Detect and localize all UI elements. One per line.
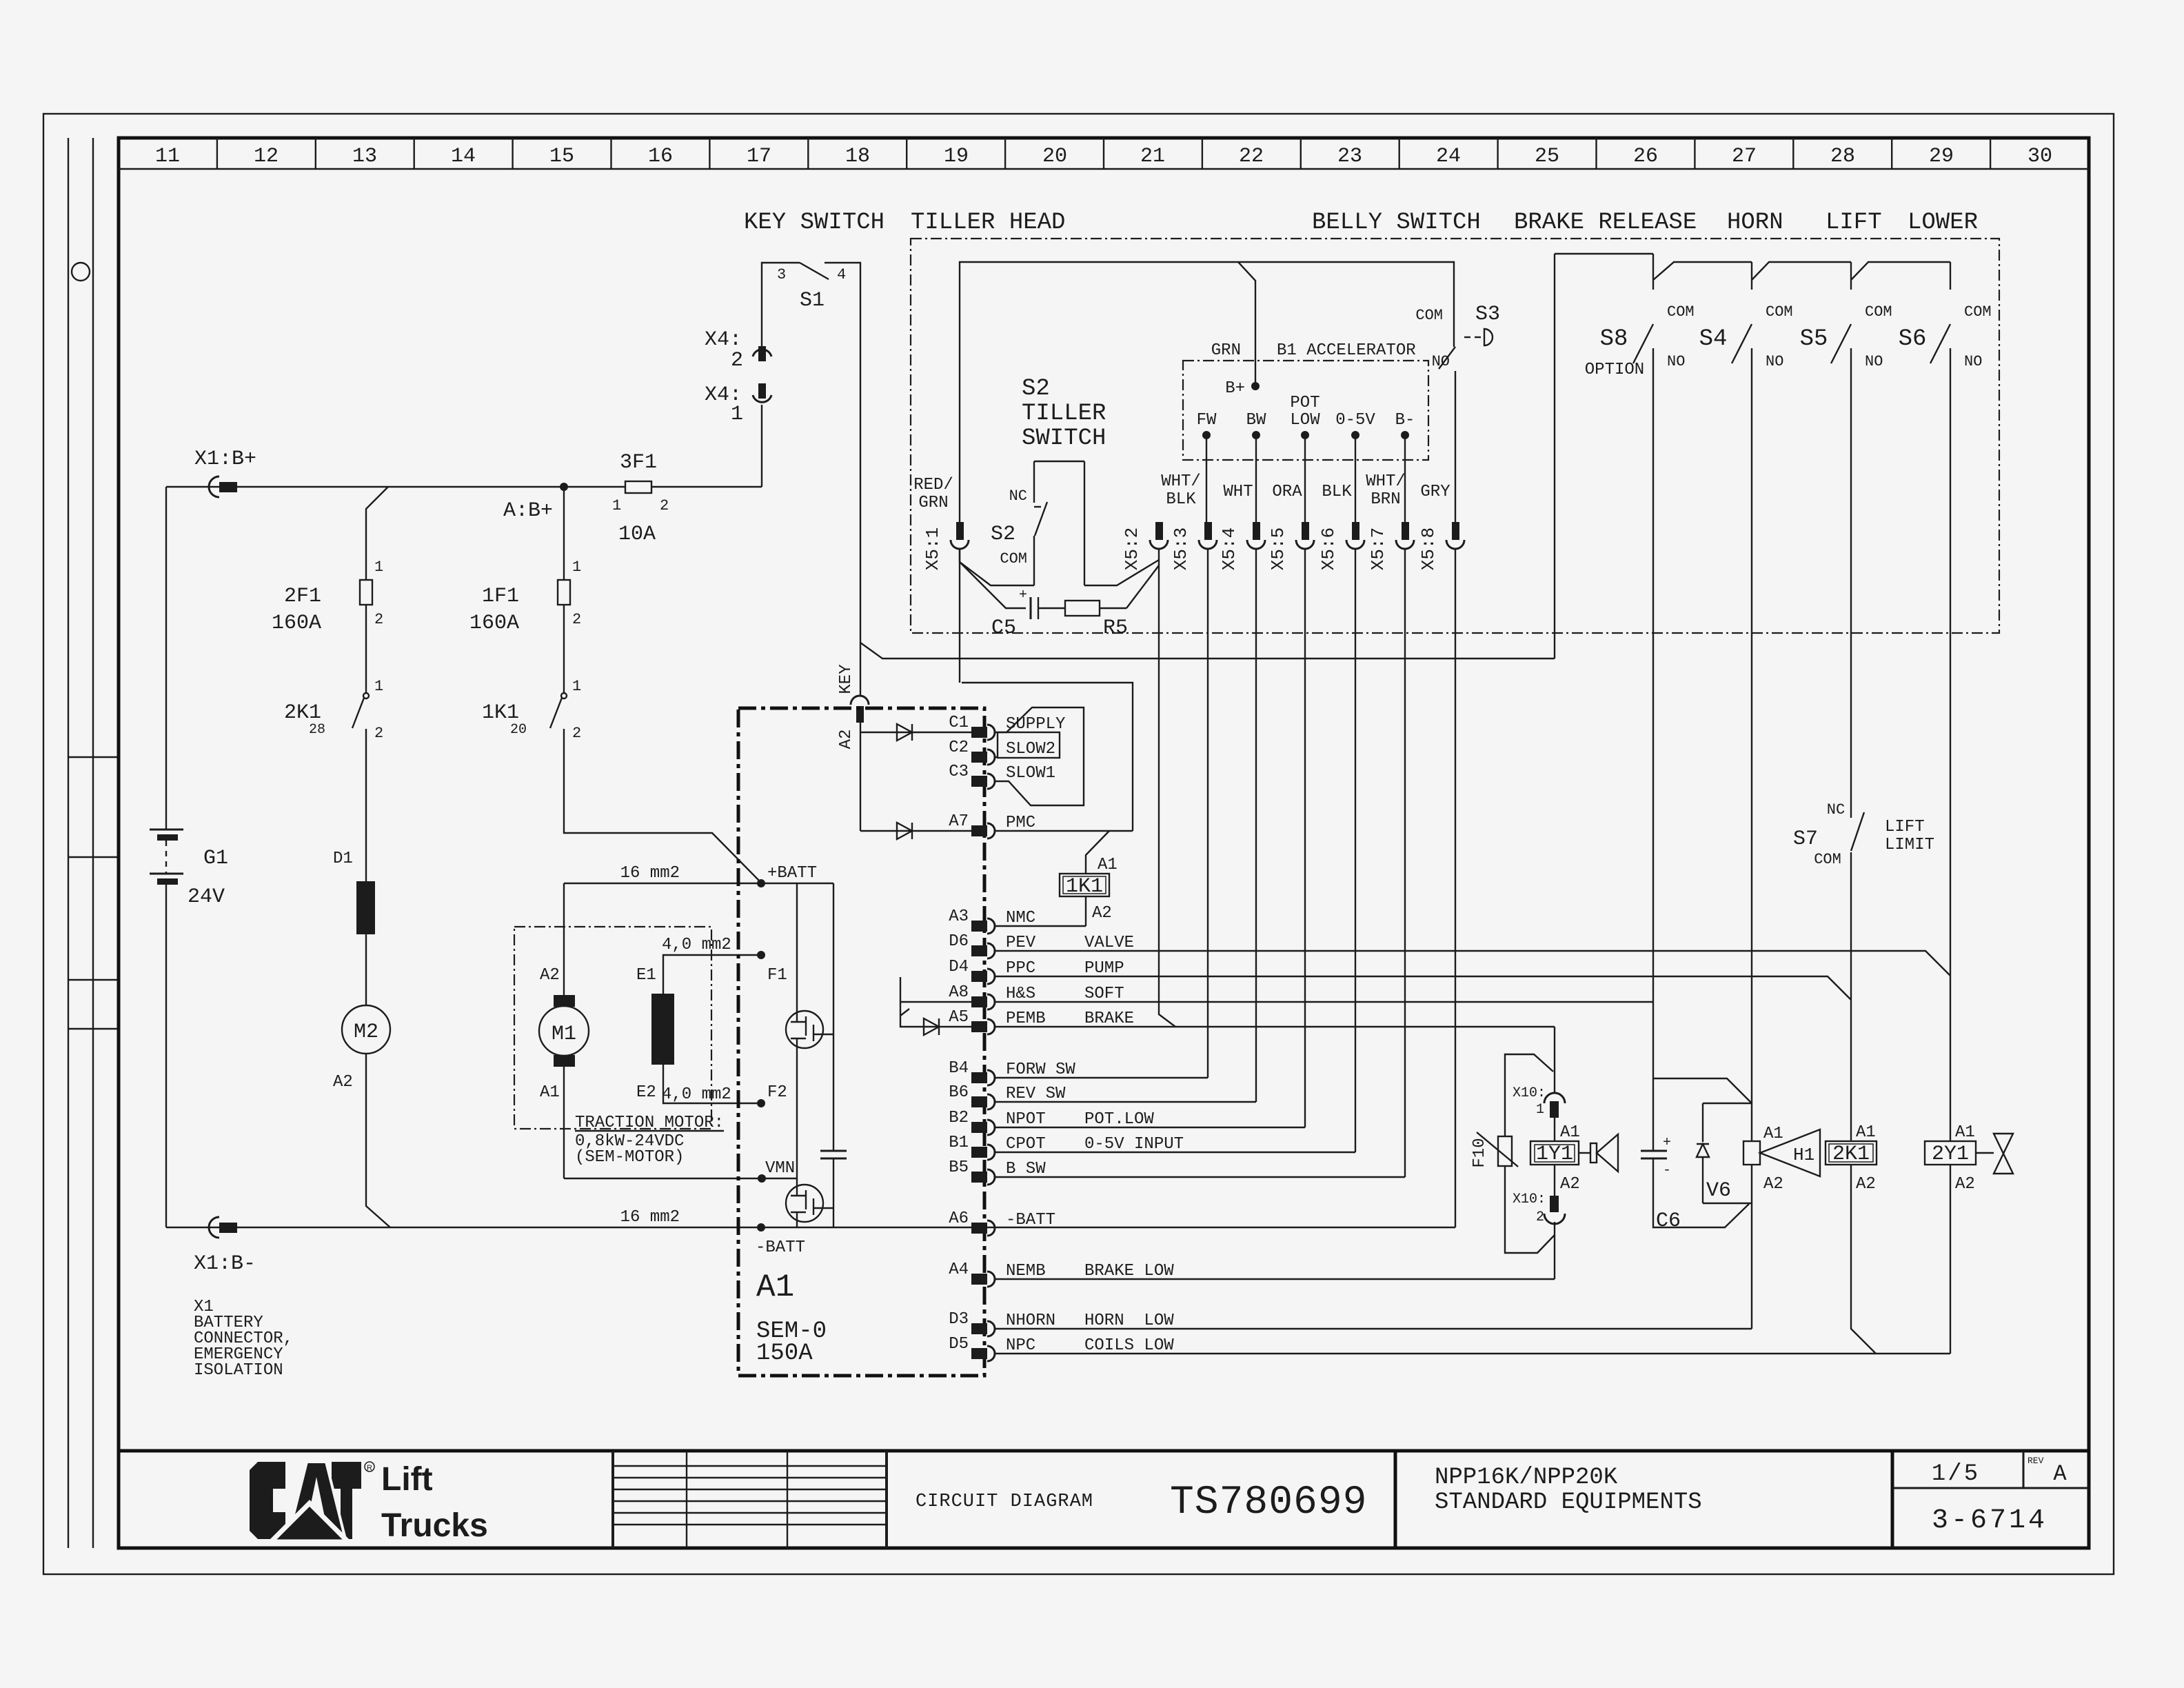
svg-text:CPOT: CPOT: [1006, 1135, 1046, 1154]
svg-text:S6: S6: [1899, 326, 1927, 352]
svg-text:18: 18: [845, 145, 870, 168]
svg-text:A2: A2: [540, 966, 560, 985]
svg-text:1: 1: [374, 678, 383, 695]
svg-text:KEY: KEY: [837, 664, 856, 694]
svg-text:COM: COM: [1865, 303, 1892, 321]
svg-text:NC: NC: [1827, 801, 1845, 818]
svg-text:3-6714: 3-6714: [1932, 1505, 2048, 1536]
svg-text:(SEM-MOTOR): (SEM-MOTOR): [575, 1148, 684, 1167]
svg-text:20: 20: [1042, 145, 1067, 168]
svg-text:A2: A2: [1955, 1175, 1975, 1194]
svg-text:15: 15: [549, 145, 574, 168]
svg-text:S3: S3: [1475, 303, 1500, 326]
svg-text:X5:3: X5:3: [1171, 527, 1191, 570]
svg-text:REV: REV: [2028, 1456, 2044, 1466]
svg-text:A1: A1: [1098, 856, 1118, 874]
svg-text:2K1: 2K1: [1832, 1143, 1870, 1166]
svg-text:X5:5: X5:5: [1268, 527, 1288, 570]
svg-text:16 mm2: 16 mm2: [620, 864, 680, 883]
svg-text:A7: A7: [949, 812, 969, 831]
svg-text:1: 1: [374, 559, 383, 576]
svg-text:19: 19: [944, 145, 969, 168]
svg-text:A2: A2: [837, 730, 856, 750]
svg-text:160A: 160A: [272, 612, 321, 635]
svg-text:VALVE: VALVE: [1084, 934, 1134, 952]
svg-text:C5: C5: [991, 616, 1016, 640]
svg-text:WHT: WHT: [1223, 483, 1253, 501]
svg-text:ISOLATION: ISOLATION: [194, 1361, 283, 1380]
svg-text:LOWER: LOWER: [1908, 210, 1978, 236]
svg-text:SLOW2: SLOW2: [1006, 740, 1055, 758]
svg-text:26: 26: [1633, 145, 1658, 168]
svg-text:B1 ACCELERATOR: B1 ACCELERATOR: [1277, 341, 1416, 360]
svg-text:Lift: Lift: [381, 1461, 433, 1498]
svg-text:SLOW1: SLOW1: [1006, 764, 1055, 783]
svg-text:COM: COM: [1000, 550, 1027, 567]
svg-text:B4: B4: [949, 1059, 969, 1078]
svg-text:POT: POT: [1290, 394, 1319, 412]
svg-text:C6: C6: [1656, 1209, 1681, 1233]
svg-text:1: 1: [612, 497, 621, 514]
svg-text:NO: NO: [1432, 353, 1450, 370]
svg-text:X10:: X10:: [1513, 1192, 1546, 1207]
svg-text:X5:7: X5:7: [1368, 527, 1388, 570]
svg-text:SOFT: SOFT: [1084, 985, 1124, 1003]
svg-text:LOW: LOW: [1290, 411, 1320, 430]
svg-text:GRY: GRY: [1420, 483, 1450, 501]
svg-text:PUMP: PUMP: [1084, 959, 1124, 978]
svg-text:ORA: ORA: [1272, 483, 1302, 501]
svg-text:2F1: 2F1: [284, 585, 321, 608]
svg-text:TILLER HEAD: TILLER HEAD: [911, 210, 1065, 236]
svg-text:X5:1: X5:1: [922, 527, 943, 570]
svg-text:A1: A1: [540, 1083, 560, 1102]
svg-text:1K1: 1K1: [1066, 875, 1103, 898]
svg-text:150A: 150A: [756, 1340, 813, 1367]
svg-text:BRAKE RELEASE: BRAKE RELEASE: [1514, 210, 1697, 236]
svg-text:X1:B+: X1:B+: [194, 448, 256, 471]
svg-text:10A: 10A: [618, 523, 656, 546]
svg-text:COM: COM: [1964, 303, 1992, 321]
svg-text:1F1: 1F1: [482, 585, 519, 608]
svg-text:1: 1: [1536, 1102, 1544, 1118]
svg-text:BW: BW: [1246, 411, 1266, 430]
svg-text:A2: A2: [1560, 1175, 1580, 1194]
svg-text:B SW: B SW: [1006, 1160, 1046, 1178]
svg-text:A1: A1: [1856, 1123, 1876, 1142]
svg-text:24: 24: [1436, 145, 1461, 168]
svg-text:12: 12: [254, 145, 279, 168]
svg-text:TS780699: TS780699: [1170, 1480, 1367, 1525]
svg-text:0-5V INPUT: 0-5V INPUT: [1084, 1135, 1184, 1154]
svg-text:-: -: [1663, 1163, 1671, 1178]
svg-text:A: A: [2053, 1461, 2067, 1487]
svg-text:F1: F1: [767, 966, 787, 985]
svg-text:A6: A6: [949, 1209, 969, 1228]
svg-text:21: 21: [1140, 145, 1165, 168]
svg-text:X5:4: X5:4: [1219, 527, 1240, 570]
svg-text:STANDARD EQUIPMENTS: STANDARD EQUIPMENTS: [1435, 1489, 1702, 1516]
svg-text:PMC: PMC: [1006, 814, 1035, 832]
svg-text:13: 13: [352, 145, 377, 168]
svg-text:16: 16: [648, 145, 673, 168]
svg-text:F2: F2: [767, 1083, 787, 1102]
svg-text:TRACTION MOTOR:: TRACTION MOTOR:: [575, 1114, 724, 1132]
svg-text:NO: NO: [1865, 353, 1883, 370]
svg-text:WHT/: WHT/: [1161, 472, 1201, 491]
svg-text:POT.LOW: POT.LOW: [1084, 1110, 1154, 1129]
svg-text:BELLY SWITCH: BELLY SWITCH: [1312, 210, 1481, 236]
svg-text:COM: COM: [1814, 851, 1841, 868]
svg-text:2: 2: [572, 725, 581, 742]
svg-text:S2: S2: [1022, 376, 1050, 402]
svg-text:A1: A1: [1955, 1123, 1975, 1142]
svg-text:1: 1: [572, 678, 581, 695]
svg-text:+BATT: +BATT: [767, 864, 817, 883]
svg-text:M1: M1: [552, 1023, 576, 1046]
svg-text:KEY SWITCH: KEY SWITCH: [744, 210, 884, 236]
svg-text:11: 11: [155, 145, 180, 168]
svg-text:C2: C2: [949, 738, 969, 757]
svg-text:20: 20: [510, 722, 527, 738]
svg-text:CIRCUIT DIAGRAM: CIRCUIT DIAGRAM: [916, 1491, 1093, 1512]
svg-text:4: 4: [837, 266, 846, 283]
svg-text:BLK: BLK: [1166, 490, 1196, 509]
svg-text:B6: B6: [949, 1083, 969, 1102]
svg-text:A2: A2: [333, 1073, 353, 1092]
svg-text:D5: D5: [949, 1335, 969, 1354]
svg-text:4,0 mm2: 4,0 mm2: [662, 936, 731, 954]
svg-text:2: 2: [731, 349, 743, 372]
svg-text:PPC: PPC: [1006, 959, 1035, 978]
svg-text:2: 2: [374, 611, 383, 628]
svg-text:1Y1: 1Y1: [1536, 1143, 1573, 1166]
svg-text:1/5: 1/5: [1932, 1461, 1980, 1487]
svg-text:B2: B2: [949, 1109, 969, 1127]
svg-text:1K1: 1K1: [482, 701, 519, 725]
svg-text:E2: E2: [636, 1083, 656, 1102]
svg-text:24V: 24V: [188, 885, 225, 909]
svg-text:NO: NO: [1667, 353, 1685, 370]
svg-text:OPTION: OPTION: [1585, 361, 1644, 379]
svg-text:FORW SW: FORW SW: [1006, 1061, 1075, 1079]
svg-text:25: 25: [1535, 145, 1559, 168]
svg-text:+: +: [1019, 587, 1027, 603]
svg-text:GRN: GRN: [918, 494, 948, 512]
svg-text:A2: A2: [1092, 904, 1112, 923]
svg-text:14: 14: [451, 145, 476, 168]
svg-text:3F1: 3F1: [620, 451, 657, 474]
svg-text:BRAKE: BRAKE: [1084, 1009, 1134, 1028]
svg-text:NPOT: NPOT: [1006, 1110, 1046, 1129]
svg-text:16 mm2: 16 mm2: [620, 1208, 680, 1227]
svg-text:NO: NO: [1766, 353, 1783, 370]
svg-text:X5:2: X5:2: [1122, 527, 1142, 570]
svg-text:PEV: PEV: [1006, 934, 1036, 952]
svg-text:30: 30: [2028, 145, 2052, 168]
svg-text:A2: A2: [1763, 1175, 1783, 1194]
svg-text:REV SW: REV SW: [1006, 1085, 1066, 1103]
svg-text:22: 22: [1239, 145, 1264, 168]
svg-text:B1: B1: [949, 1134, 969, 1152]
svg-text:S7: S7: [1793, 827, 1818, 851]
svg-text:1: 1: [731, 403, 743, 426]
svg-text:A5: A5: [949, 1008, 969, 1027]
svg-text:-BATT: -BATT: [1006, 1211, 1055, 1229]
svg-text:A1: A1: [1763, 1125, 1783, 1143]
svg-text:D6: D6: [949, 932, 969, 951]
svg-text:27: 27: [1732, 145, 1757, 168]
svg-text:1: 1: [572, 559, 581, 576]
svg-text:D3: D3: [949, 1310, 969, 1329]
svg-text:HORN: HORN: [1727, 210, 1783, 236]
svg-text:4,0 mm2: 4,0 mm2: [662, 1085, 731, 1104]
svg-text:B+: B+: [1225, 379, 1245, 398]
svg-text:H1: H1: [1793, 1145, 1814, 1165]
svg-text:A2: A2: [1856, 1175, 1876, 1194]
svg-text:COM: COM: [1415, 307, 1443, 324]
svg-text:C1: C1: [949, 714, 969, 732]
svg-text:28: 28: [1830, 145, 1855, 168]
svg-text:HORN LOW: HORN LOW: [1084, 1312, 1174, 1330]
svg-text:F10: F10: [1470, 1138, 1489, 1167]
svg-text:17: 17: [747, 145, 771, 168]
svg-text:SWITCH: SWITCH: [1022, 425, 1106, 452]
svg-text:TILLER: TILLER: [1022, 401, 1106, 427]
svg-text:LIFT: LIFT: [1826, 210, 1882, 236]
svg-text:H&S: H&S: [1006, 985, 1035, 1003]
svg-text:NMC: NMC: [1006, 909, 1035, 927]
svg-text:X5:6: X5:6: [1318, 527, 1339, 570]
svg-text:GRN: GRN: [1211, 341, 1241, 360]
svg-text:BRN: BRN: [1371, 490, 1400, 509]
svg-text:NC: NC: [1009, 488, 1027, 505]
svg-text:G1: G1: [203, 847, 228, 870]
svg-text:Trucks: Trucks: [381, 1507, 488, 1544]
svg-text:X1:B-: X1:B-: [194, 1252, 256, 1276]
svg-text:A4: A4: [949, 1260, 969, 1279]
svg-text:COILS LOW: COILS LOW: [1084, 1336, 1174, 1355]
svg-text:COM: COM: [1667, 303, 1695, 321]
svg-text:NPP16K/NPP20K: NPP16K/NPP20K: [1435, 1465, 1618, 1491]
svg-text:RED/: RED/: [913, 476, 953, 494]
svg-text:S5: S5: [1800, 326, 1828, 352]
svg-text:A1: A1: [756, 1269, 794, 1305]
svg-text:S2: S2: [991, 523, 1015, 546]
svg-text:A8: A8: [949, 983, 969, 1002]
svg-text:X4:: X4:: [705, 328, 742, 352]
svg-text:S1: S1: [800, 289, 825, 312]
svg-text:23: 23: [1337, 145, 1362, 168]
svg-text:29: 29: [1929, 145, 1954, 168]
svg-text:R: R: [367, 1464, 372, 1472]
svg-text:NHORN: NHORN: [1006, 1312, 1055, 1330]
svg-text:FW: FW: [1197, 411, 1217, 430]
svg-text:2: 2: [374, 725, 383, 742]
svg-text:2: 2: [572, 611, 581, 628]
svg-text:BLK: BLK: [1322, 483, 1352, 501]
svg-text:28: 28: [309, 722, 325, 738]
svg-text:COM: COM: [1766, 303, 1793, 321]
svg-text:D4: D4: [949, 958, 969, 976]
svg-text:X5:8: X5:8: [1418, 527, 1439, 570]
svg-text:A3: A3: [949, 907, 969, 926]
svg-text:PEMB: PEMB: [1006, 1009, 1046, 1028]
svg-text:NPC: NPC: [1006, 1336, 1035, 1355]
svg-text:NO: NO: [1964, 353, 1982, 370]
svg-text:M2: M2: [354, 1021, 378, 1044]
svg-text:2: 2: [1536, 1209, 1544, 1225]
svg-text:WHT/: WHT/: [1366, 472, 1406, 491]
svg-text:V6: V6: [1706, 1179, 1731, 1203]
svg-text:2K1: 2K1: [284, 701, 321, 725]
svg-text:+: +: [1663, 1135, 1671, 1151]
svg-text:3: 3: [777, 266, 786, 283]
svg-text:0-5V: 0-5V: [1335, 411, 1375, 430]
svg-text:BRAKE LOW: BRAKE LOW: [1084, 1262, 1174, 1280]
svg-text:2: 2: [660, 497, 669, 514]
svg-text:2Y1: 2Y1: [1932, 1143, 1969, 1166]
svg-text:VMN: VMN: [765, 1159, 795, 1178]
svg-text:C3: C3: [949, 763, 969, 781]
svg-text:S8: S8: [1600, 326, 1628, 352]
svg-text:D1: D1: [333, 850, 353, 868]
svg-text:S4: S4: [1699, 326, 1728, 352]
svg-text:-BATT: -BATT: [756, 1238, 805, 1257]
svg-text:B-: B-: [1395, 411, 1415, 430]
svg-text:LIMIT: LIMIT: [1885, 836, 1934, 854]
svg-text:NEMB: NEMB: [1006, 1262, 1046, 1280]
svg-text:R5: R5: [1103, 616, 1128, 640]
svg-text:E1: E1: [636, 966, 656, 985]
svg-text:A:B+: A:B+: [503, 499, 553, 523]
svg-text:160A: 160A: [469, 612, 519, 635]
svg-text:B5: B5: [949, 1158, 969, 1177]
svg-text:X10:: X10:: [1513, 1085, 1546, 1101]
svg-text:LIFT: LIFT: [1885, 818, 1925, 836]
svg-text:A1: A1: [1560, 1123, 1580, 1142]
